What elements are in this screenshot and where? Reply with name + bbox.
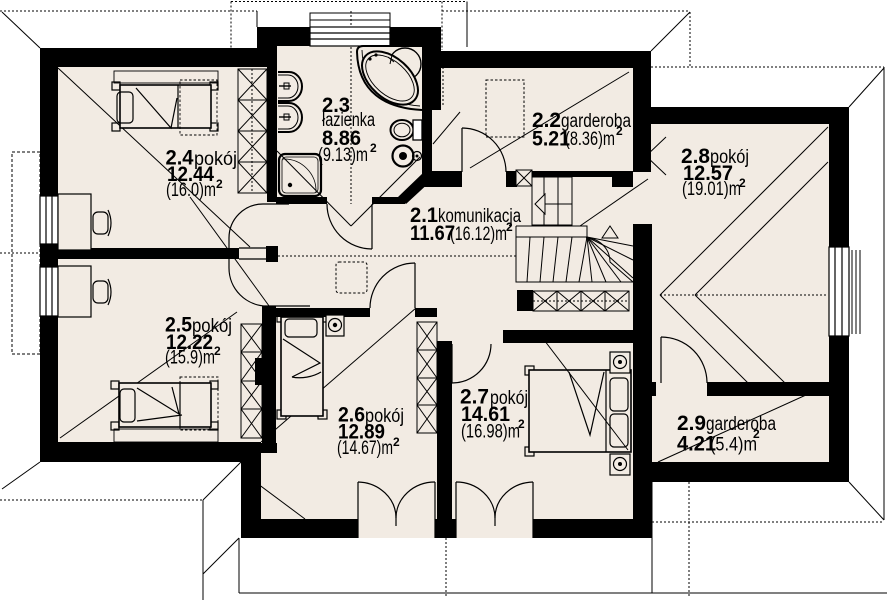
svg-text:2: 2 bbox=[739, 176, 746, 190]
svg-text:(19.01)m: (19.01)m bbox=[682, 179, 741, 200]
svg-text:2: 2 bbox=[616, 124, 623, 138]
svg-text:2: 2 bbox=[216, 177, 223, 191]
svg-text:(16.98)m: (16.98)m bbox=[461, 422, 520, 443]
svg-text:2: 2 bbox=[370, 141, 377, 155]
svg-text:2: 2 bbox=[518, 417, 525, 431]
svg-text:(9.13)m: (9.13)m bbox=[318, 145, 368, 166]
svg-text:(15.9)m: (15.9)m bbox=[165, 348, 215, 369]
svg-text:(14.67)m: (14.67)m bbox=[337, 438, 393, 459]
svg-text:11.67: 11.67 bbox=[410, 222, 455, 245]
svg-text:(5.4)m: (5.4)m bbox=[710, 435, 757, 456]
svg-text:2: 2 bbox=[393, 435, 400, 449]
svg-text:(16.12)m: (16.12)m bbox=[450, 224, 507, 245]
svg-text:2: 2 bbox=[214, 344, 221, 358]
svg-text:2: 2 bbox=[506, 220, 513, 234]
svg-text:(8.36)m: (8.36)m bbox=[565, 129, 615, 150]
svg-text:(16.0)m: (16.0)m bbox=[166, 180, 216, 201]
svg-text:garderoba: garderoba bbox=[706, 414, 776, 435]
svg-text:2: 2 bbox=[753, 427, 760, 441]
